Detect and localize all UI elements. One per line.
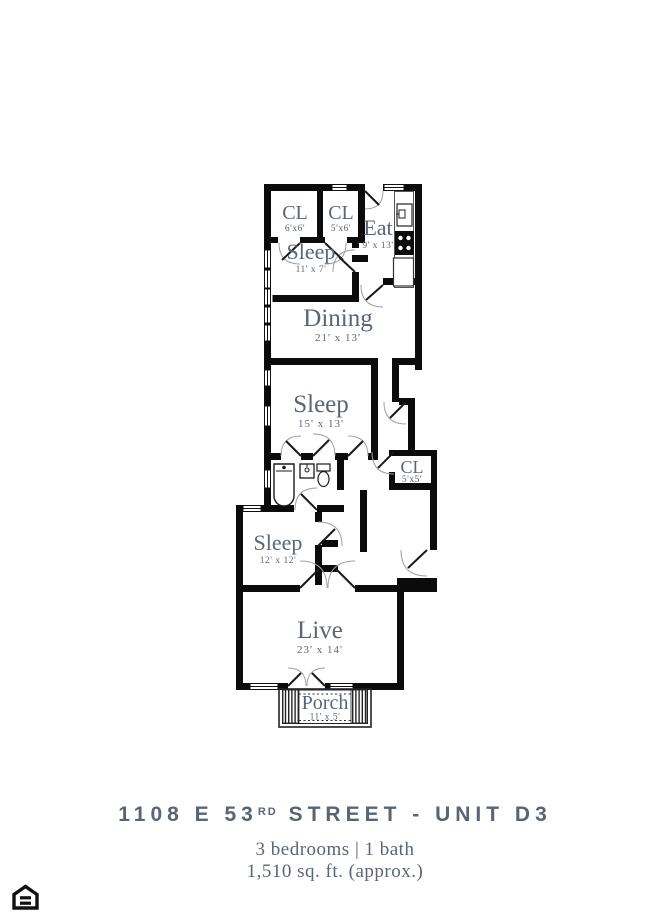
room-dims-porch: 11' x 5' (310, 713, 341, 723)
floor-plan-drawing: CL 6'x6' CL 5'x6' Eat 9' x 13' Sleep 11'… (0, 0, 670, 917)
address-prefix: 1108 E 53 (118, 803, 258, 826)
room-label-porch: Porch (302, 692, 349, 714)
window-dining-left (263, 289, 273, 341)
footer: 1108 E 53RD STREET - UNIT D3 3 bedrooms … (0, 803, 670, 883)
bathtub (274, 464, 294, 506)
stove-icon (395, 231, 414, 255)
address-suffix: STREET - UNIT D3 (278, 803, 552, 826)
window-sleep12-top (243, 504, 261, 514)
room-label-live: Live (297, 617, 343, 644)
room-dims-live: 23' x 14' (297, 644, 343, 656)
room-label-dining: Dining (303, 305, 373, 332)
room-dims-sleep-3: 12' x 12' (260, 556, 296, 566)
bath-sink (300, 464, 314, 478)
room-dims-closet-2: 5'x6' (331, 224, 351, 234)
equal-housing-opportunity-icon (9, 883, 43, 911)
porch-screen-right (351, 690, 367, 723)
bathroom-fixtures (274, 464, 330, 506)
address-ordinal: RD (258, 806, 278, 818)
room-label-eat: Eat (363, 215, 392, 240)
room-dims-dining: 21' x 13' (315, 332, 361, 344)
floor-plan: CL 6'x6' CL 5'x6' Eat 9' x 13' Sleep 11'… (0, 0, 670, 917)
room-label-closet-1: CL (282, 202, 308, 224)
room-label-sleep-2: Sleep (293, 391, 349, 418)
room-dims-sleep-1: 11' x 7' (296, 265, 327, 275)
address-title: 1108 E 53RD STREET - UNIT D3 (0, 803, 670, 827)
toilet (317, 464, 330, 487)
window-bathroom-left (263, 470, 273, 488)
room-dims-eat: 9' x 13' (362, 241, 393, 251)
room-label-closet-2: CL (328, 202, 354, 224)
room-dims-closet-1: 6'x6' (285, 224, 305, 234)
kitchen-sink (396, 204, 412, 226)
bed-bath-line: 3 bedrooms | 1 bath (0, 839, 670, 861)
room-label-sleep-1: Sleep (287, 239, 336, 264)
room-label-sleep-3: Sleep (254, 530, 303, 555)
porch-screen-left (283, 690, 299, 723)
window-live-bottom-left (250, 682, 278, 692)
kitchen-fixtures (394, 192, 415, 288)
window-top-closet (332, 183, 347, 193)
unit-details: 3 bedrooms | 1 bath 1,510 sq. ft. (appro… (0, 839, 670, 883)
room-dims-sleep-2: 15' x 13' (298, 418, 344, 430)
sqft-line: 1,510 sq. ft. (approx.) (0, 861, 670, 883)
room-label-closet-3: CL (400, 457, 423, 477)
room-dims-closet-3: 5'x5' (402, 475, 422, 485)
refrigerator (394, 258, 414, 286)
